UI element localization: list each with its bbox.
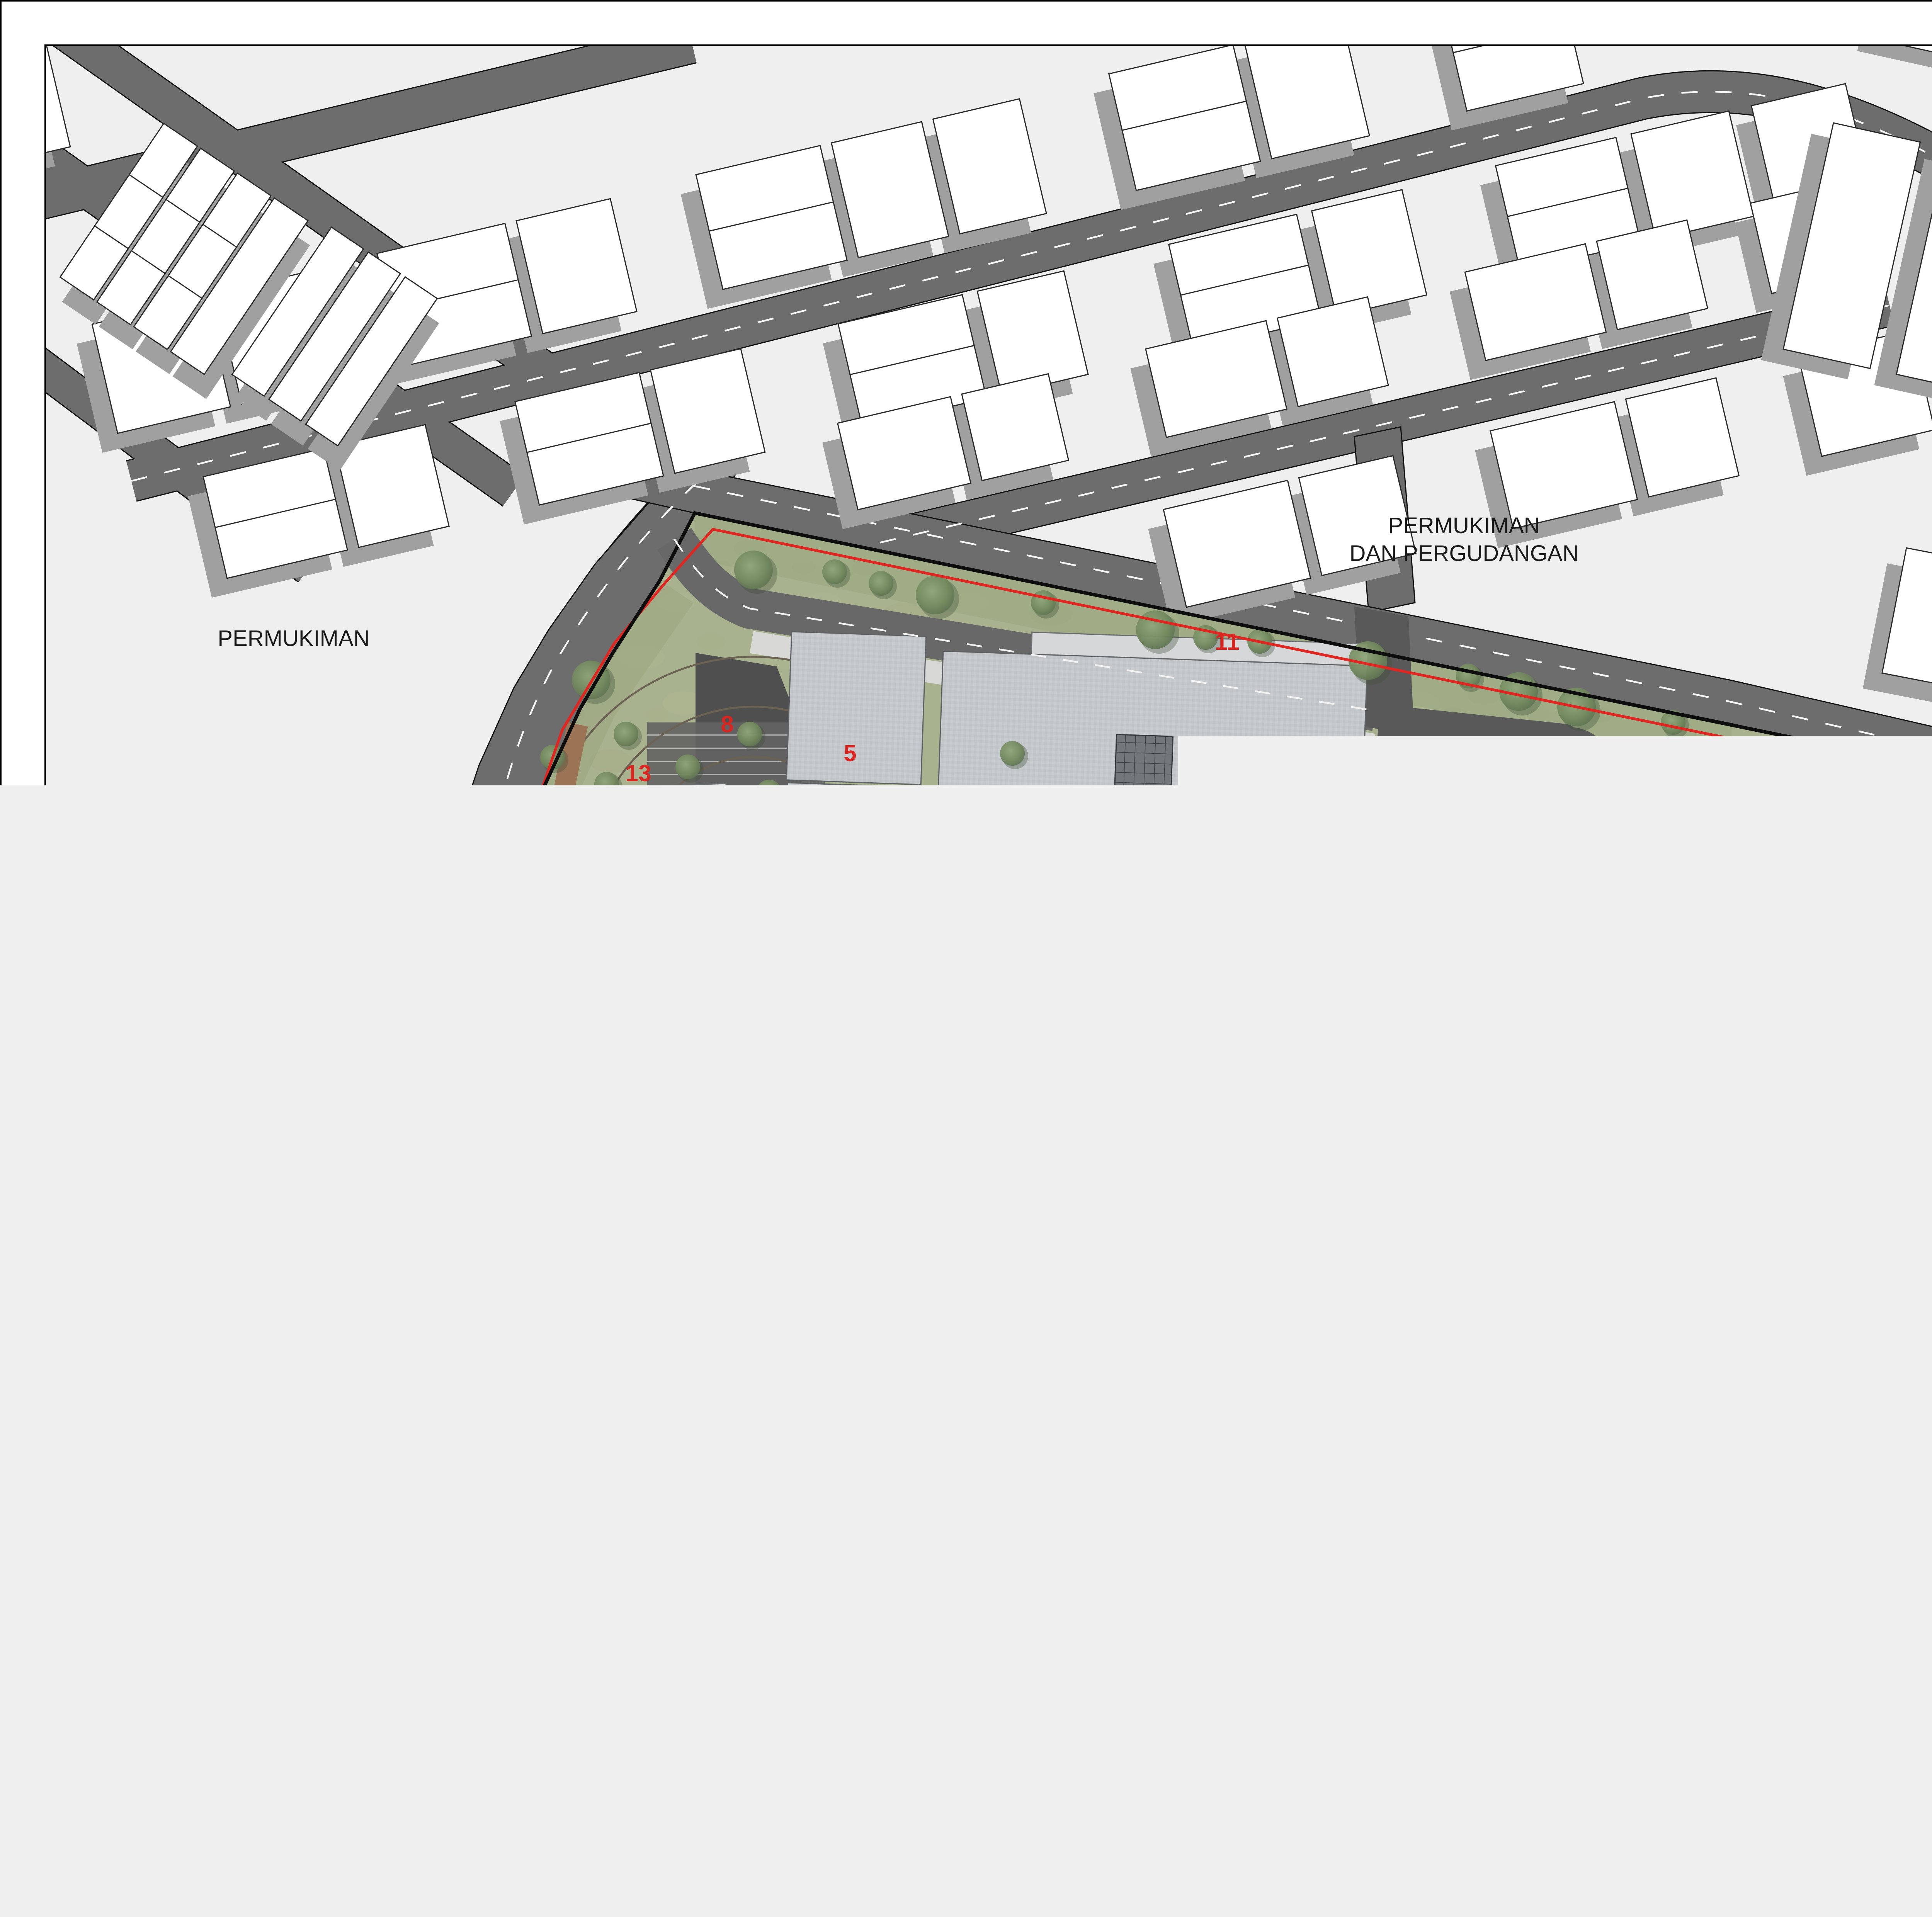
svg-text:area edukasi: area edukasi [425, 1669, 547, 1693]
svg-text:12: 12 [602, 1749, 626, 1773]
svg-text:2: 2 [1106, 906, 1119, 932]
svg-text:9: 9 [771, 782, 784, 807]
svg-text:6: 6 [695, 949, 707, 975]
svg-text:TAMAN PUPR: TAMAN PUPR [905, 1534, 1050, 1559]
svg-text:6: 6 [385, 1776, 397, 1800]
svg-text:FASILITAS EDUWISATA: FASILITAS EDUWISATA [1809, 1704, 1932, 1728]
svg-text:13: 13 [602, 1776, 626, 1800]
svg-text:1: 1 [385, 1643, 397, 1667]
svg-text:2: 2 [385, 1669, 397, 1693]
svg-text:PERMUKIMAN: PERMUKIMAN [218, 626, 369, 651]
svg-text:14: 14 [602, 1803, 626, 1827]
svg-text:JUDUL GAMBAR: JUDUL GAMBAR [1694, 1766, 1776, 1777]
svg-text:FAKULTAS TEKNIK SIPIL DAN PERE: FAKULTAS TEKNIK SIPIL DAN PERENCANAAN [1430, 1831, 1683, 1844]
svg-text:3: 3 [1178, 792, 1190, 818]
svg-text:9: 9 [609, 1669, 621, 1693]
svg-text:1: 1 [932, 997, 945, 1023]
svg-text:10: 10 [1472, 747, 1498, 773]
svg-text:JUDUL TUGAS: JUDUL TUGAS [1694, 1693, 1766, 1705]
svg-text:4: 4 [1487, 939, 1500, 965]
svg-text:SITE PLAN: SITE PLAN [1816, 1804, 1927, 1828]
svg-text:kantor pengelola: kantor pengelola [650, 1669, 807, 1693]
svg-text:buffer zone: buffer zone [650, 1723, 756, 1747]
svg-text:f & b: f & b [425, 1776, 469, 1800]
svg-text:11: 11 [1667, 760, 1692, 785]
svg-text:13: 13 [626, 760, 651, 786]
svg-text:SURABAYA: SURABAYA [1523, 1859, 1590, 1873]
svg-text:galeri & souvenir: galeri & souvenir [425, 1749, 583, 1773]
svg-text:UNIVERSITAS KRISTEN PETRA: UNIVERSITAS KRISTEN PETRA [1462, 1844, 1651, 1858]
svg-text:11: 11 [603, 1723, 626, 1747]
svg-text:11: 11 [1215, 629, 1239, 655]
svg-text:4: 4 [385, 1723, 397, 1747]
svg-text:3: 3 [385, 1696, 397, 1720]
svg-text:5: 5 [844, 740, 856, 766]
svg-text:DAN PERGUDANGAN: DAN PERGUDANGAN [1350, 541, 1579, 566]
svg-text:kebun organik: kebun organik [650, 1776, 784, 1800]
svg-text:taman plaza: taman plaza [650, 1749, 766, 1773]
svg-text:7: 7 [1114, 1146, 1127, 1172]
svg-text:8: 8 [609, 1643, 621, 1667]
svg-text:loading sampah: loading sampah [650, 1696, 800, 1720]
svg-text:parkir pengelola: parkir pengelola [650, 1643, 801, 1667]
svg-text:12: 12 [450, 1100, 476, 1126]
svg-text:gazebo: gazebo [650, 1803, 719, 1827]
svg-text:PENGELOLAAN SAMPAH DI SURABAYA: PENGELOLAAN SAMPAH DI SURABAYA [1725, 1730, 1932, 1755]
svg-text:10: 10 [602, 1696, 626, 1720]
svg-text:PROGRAM STUDI ARSITEKTUR: PROGRAM STUDI ARSITEKTUR [1433, 1810, 1680, 1828]
svg-text:area pemilahan: area pemilahan [425, 1723, 571, 1747]
svg-text:11: 11 [1673, 1064, 1697, 1090]
svg-text:lobby: lobby [425, 1643, 476, 1667]
svg-text:parkir pengunjung: parkir pengunjung [425, 1803, 595, 1827]
svg-text:PERMUKIMAN: PERMUKIMAN [1388, 513, 1540, 538]
svg-text:TUGAS AKHIR - SEMESTER GENAP 2: TUGAS AKHIR - SEMESTER GENAP 2023/2024 [1730, 1664, 1932, 1684]
svg-text:area workshop: area workshop [425, 1696, 565, 1720]
svg-text:7: 7 [385, 1803, 397, 1827]
svg-text:5: 5 [385, 1749, 397, 1773]
svg-text:13: 13 [1410, 1174, 1436, 1200]
svg-text:8: 8 [721, 711, 733, 737]
